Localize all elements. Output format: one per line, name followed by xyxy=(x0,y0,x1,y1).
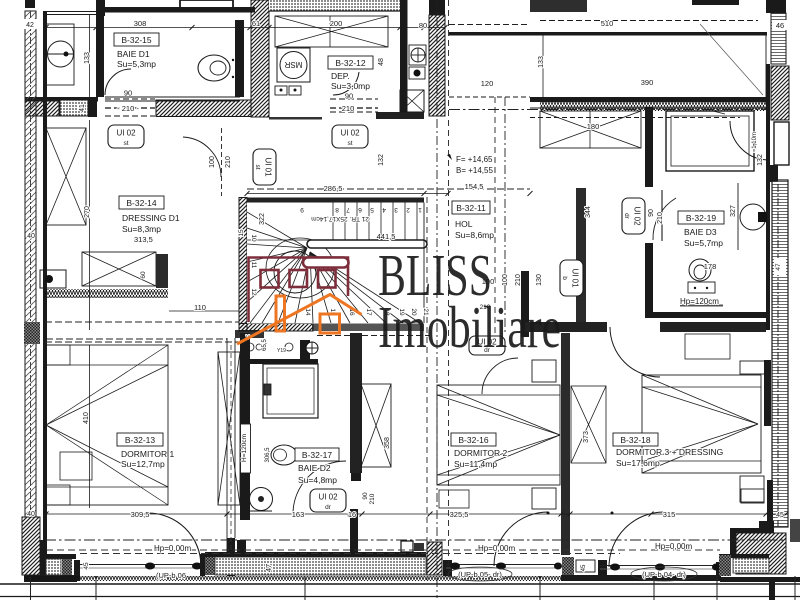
svg-text:B= +14,55: B= +14,55 xyxy=(456,166,493,175)
svg-text:441,5: 441,5 xyxy=(377,232,396,241)
svg-text:≈1,10m: ≈1,10m xyxy=(752,132,758,152)
svg-text:313,5: 313,5 xyxy=(134,235,153,244)
svg-text:47: 47 xyxy=(264,564,273,572)
svg-text:210: 210 xyxy=(369,493,376,504)
svg-text:3: 3 xyxy=(394,206,398,213)
svg-text:DORMITOR 2: DORMITOR 2 xyxy=(454,448,507,458)
svg-text:b: b xyxy=(561,276,568,280)
svg-text:Su=12,7mp: Su=12,7mp xyxy=(121,459,165,469)
svg-text:180: 180 xyxy=(587,122,600,131)
svg-text:100: 100 xyxy=(502,274,509,286)
svg-text:Su=17,6mp: Su=17,6mp xyxy=(616,458,660,468)
svg-text:7: 7 xyxy=(346,206,350,213)
svg-text:90: 90 xyxy=(362,492,369,500)
svg-text:132: 132 xyxy=(757,154,764,166)
svg-text:Hp=0,00m: Hp=0,00m xyxy=(478,544,515,553)
svg-text:40: 40 xyxy=(27,511,35,518)
svg-text:(UP-b 06: (UP-b 06 xyxy=(156,571,186,580)
svg-text:(UP-b 05- dr): (UP-b 05- dr) xyxy=(458,570,502,579)
svg-text:Su=8,3mp: Su=8,3mp xyxy=(122,224,161,234)
svg-text:210: 210 xyxy=(225,156,232,168)
svg-text:Su=3,0mp: Su=3,0mp xyxy=(331,81,370,91)
svg-text:UI 02: UI 02 xyxy=(318,493,338,502)
svg-text:Hp=0,00m: Hp=0,00m xyxy=(154,544,191,553)
svg-text:F= +14,65: F= +14,65 xyxy=(456,155,493,164)
svg-text:DEP.: DEP. xyxy=(331,71,350,81)
svg-text:DRESSING D1: DRESSING D1 xyxy=(122,213,180,223)
svg-text:DORMITOR 3 + DRESSING: DORMITOR 3 + DRESSING xyxy=(616,447,723,457)
svg-text:132: 132 xyxy=(378,154,385,166)
svg-text:B-32-13: B-32-13 xyxy=(125,435,156,445)
svg-text:8: 8 xyxy=(335,206,339,213)
svg-text:16: 16 xyxy=(348,510,356,519)
svg-text:154,5: 154,5 xyxy=(465,182,484,191)
svg-text:B-32-17: B-32-17 xyxy=(302,450,333,460)
svg-text:510: 510 xyxy=(601,19,614,28)
svg-text:- 210 -: - 210 - xyxy=(117,104,139,113)
svg-text:200: 200 xyxy=(330,19,343,28)
svg-text:47: 47 xyxy=(775,263,782,271)
svg-text:st: st xyxy=(123,140,128,147)
svg-text:Imobiliare: Imobiliare xyxy=(378,294,561,360)
svg-text:373: 373 xyxy=(583,431,590,443)
svg-text:14: 14 xyxy=(304,308,311,316)
svg-text:Su=5,7mp: Su=5,7mp xyxy=(684,238,723,248)
svg-text:4: 4 xyxy=(382,206,386,213)
svg-text:Su=11,4mp: Su=11,4mp xyxy=(454,459,497,469)
svg-text:UI 01: UI 01 xyxy=(571,268,580,288)
svg-text:120: 120 xyxy=(481,79,494,88)
svg-text:210: 210 xyxy=(515,274,522,286)
svg-text:Su=4,8mp: Su=4,8mp xyxy=(298,475,337,485)
svg-text:BAIE D2: BAIE D2 xyxy=(298,463,331,473)
svg-text:B-32-12: B-32-12 xyxy=(335,58,366,68)
svg-text:306,5: 306,5 xyxy=(265,447,271,463)
svg-text:90: 90 xyxy=(345,92,353,101)
svg-text:315: 315 xyxy=(663,510,676,519)
svg-text:UI 02: UI 02 xyxy=(340,129,360,138)
svg-text:327: 327 xyxy=(730,205,737,217)
svg-text:9: 9 xyxy=(300,206,304,213)
svg-text:10: 10 xyxy=(250,234,257,242)
svg-text:90: 90 xyxy=(648,209,655,217)
svg-text:210: 210 xyxy=(657,212,664,224)
svg-text:15: 15 xyxy=(238,229,245,237)
svg-text:BAIE D1: BAIE D1 xyxy=(117,49,150,59)
svg-text:42: 42 xyxy=(26,22,34,29)
svg-text:325,5: 325,5 xyxy=(450,510,469,519)
svg-text:DORMITOR 1: DORMITOR 1 xyxy=(121,449,174,459)
svg-text:5: 5 xyxy=(370,206,374,213)
svg-text:133: 133 xyxy=(84,52,91,64)
svg-text:60: 60 xyxy=(140,271,147,279)
svg-text:48: 48 xyxy=(378,58,385,66)
svg-text:H=120cm: H=120cm xyxy=(241,434,248,462)
svg-text:B-32-16: B-32-16 xyxy=(458,435,489,445)
svg-text:Y19: Y19 xyxy=(277,348,286,354)
svg-text:HOL: HOL xyxy=(455,219,473,229)
svg-text:Su=8,6mp: Su=8,6mp xyxy=(455,230,494,240)
svg-text:B-32-15: B-32-15 xyxy=(121,35,152,45)
svg-text:B-32-19: B-32-19 xyxy=(686,213,717,223)
svg-text:UI 02: UI 02 xyxy=(633,206,642,226)
svg-text:344: 344 xyxy=(585,206,592,218)
svg-text:309,5: 309,5 xyxy=(131,510,150,519)
svg-text:40: 40 xyxy=(27,233,35,240)
svg-text:11: 11 xyxy=(250,262,257,269)
svg-text:Hp=120cm: Hp=120cm xyxy=(680,297,719,306)
svg-text:210: 210 xyxy=(342,104,355,113)
svg-text:st: st xyxy=(254,164,261,169)
svg-text:6: 6 xyxy=(358,206,362,213)
svg-text:BAIE D3: BAIE D3 xyxy=(684,227,717,237)
svg-text:Su=5,3mp: Su=5,3mp xyxy=(117,59,156,69)
svg-text:41: 41 xyxy=(79,104,86,112)
svg-text:130: 130 xyxy=(536,274,543,286)
svg-text:46: 46 xyxy=(776,21,784,30)
svg-text:B-32-18: B-32-18 xyxy=(620,435,651,445)
svg-text:286,5: 286,5 xyxy=(324,184,343,193)
svg-text:dr: dr xyxy=(325,504,332,511)
svg-text:MSR: MSR xyxy=(284,60,302,69)
svg-text:410: 410 xyxy=(83,412,90,424)
svg-text:Hp=0,00m: Hp=0,00m xyxy=(655,542,692,551)
svg-text:110: 110 xyxy=(194,303,206,312)
svg-text:100: 100 xyxy=(209,156,216,168)
svg-text:(UP-b 04- dr): (UP-b 04- dr) xyxy=(642,570,686,579)
svg-text:90: 90 xyxy=(124,89,132,98)
svg-text:61: 61 xyxy=(252,19,260,28)
svg-text:17: 17 xyxy=(365,308,372,316)
svg-text:80: 80 xyxy=(419,21,427,30)
svg-text:B-32-11: B-32-11 xyxy=(456,203,486,213)
svg-text:12: 12 xyxy=(250,288,257,296)
svg-text:133: 133 xyxy=(538,56,545,68)
svg-text:390: 390 xyxy=(641,78,654,87)
svg-text:178: 178 xyxy=(704,262,717,271)
svg-text:358: 358 xyxy=(384,437,391,449)
svg-text:45: 45 xyxy=(581,564,587,571)
svg-text:UI 01: UI 01 xyxy=(264,157,273,177)
svg-text:308: 308 xyxy=(134,19,147,28)
svg-text:UI 02: UI 02 xyxy=(116,129,136,138)
svg-text:dr: dr xyxy=(623,213,630,220)
svg-text:1: 1 xyxy=(418,206,422,213)
svg-text:45: 45 xyxy=(83,562,90,570)
svg-text:270: 270 xyxy=(84,206,91,218)
svg-text:65,5: 65,5 xyxy=(262,339,268,351)
svg-text:2: 2 xyxy=(406,206,410,213)
svg-text:45: 45 xyxy=(776,512,784,519)
svg-text:B-32-14: B-32-14 xyxy=(126,198,157,208)
svg-text:st: st xyxy=(347,140,352,147)
svg-text:163: 163 xyxy=(292,510,305,519)
svg-text:322: 322 xyxy=(259,213,266,225)
svg-text:21 TR. 25X17,14cm: 21 TR. 25X17,14cm xyxy=(311,215,369,222)
